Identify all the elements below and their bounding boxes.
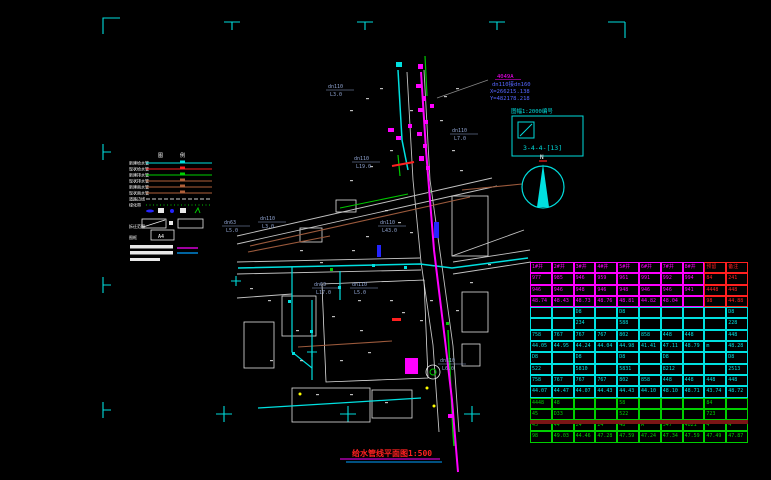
red-marks <box>392 162 414 321</box>
title-block: 给水管线平面图1:500 <box>340 448 442 462</box>
pipe-label-length: L17.0 <box>316 290 331 296</box>
table-cell: D8 <box>661 352 683 363</box>
table-cell: 48.72 <box>726 386 748 397</box>
table-cell: 448 <box>726 330 748 341</box>
pipe-label-dn: dn110 <box>380 220 395 226</box>
table-cell: 948 <box>574 285 596 296</box>
table-cell <box>704 307 726 318</box>
table-bottom-bar <box>530 420 748 424</box>
annotation-block: 4049A dn110接dn160 X=266215.138 Y=482178.… <box>490 74 531 102</box>
table-cell: 43.74 <box>704 386 726 397</box>
table-cell <box>552 352 574 363</box>
annotation-id: 4049A <box>497 74 514 80</box>
table-cell: 946 <box>574 273 596 284</box>
table-cell: 1#井 <box>530 262 552 273</box>
table-cell: 44.98 <box>617 341 639 352</box>
water-meter-symbol-icon <box>170 209 174 213</box>
table-cell: 41.41 <box>639 341 661 352</box>
pipe-label-dn: dn63 <box>314 282 326 288</box>
roads <box>237 70 531 432</box>
table-cell: 767 <box>574 330 596 341</box>
table-cell: 5810 <box>574 364 596 375</box>
table-cell <box>552 318 574 329</box>
table-cell: 48.10 <box>661 386 683 397</box>
pipe-label-dn: dn110 <box>354 156 369 162</box>
table-cell <box>726 398 748 409</box>
table-cell: D8 <box>726 307 748 318</box>
table-cell <box>683 409 705 420</box>
junction-box-symbol-icon <box>180 208 186 213</box>
table-cell: 946 <box>639 285 661 296</box>
table-cell: 47.49 <box>704 431 726 442</box>
table-cell: 992 <box>661 273 683 284</box>
table-cell: 44.07 <box>530 386 552 397</box>
annotation-x: X=266215.138 <box>490 89 530 95</box>
table-cell <box>683 352 705 363</box>
table-cell: 802 <box>617 330 639 341</box>
drawing-title: 给水管线平面图1:500 <box>352 448 432 458</box>
pipe-label-length: L43.0 <box>382 228 397 234</box>
legend-item-marker <box>180 185 185 188</box>
legend-frame-label: 图框 <box>129 234 137 240</box>
legend-frame-code: A4 <box>158 234 164 240</box>
table-cell: 767 <box>552 375 574 386</box>
table-cell <box>530 307 552 318</box>
green-pipes <box>330 56 454 446</box>
table-cell <box>704 318 726 329</box>
pipe-label-length: L5.0 <box>226 228 238 234</box>
table-cell: 48.81 <box>617 296 639 307</box>
table-cell: m <box>704 341 726 352</box>
table-cell: D33 <box>552 409 574 420</box>
table-cell <box>661 398 683 409</box>
table-group: 1#井2#井3#井4#井5#井6#井7#井8#井预留备注977985946959… <box>530 262 748 307</box>
table-cell: 47.59 <box>617 431 639 442</box>
table-cell: 6#井 <box>639 262 661 273</box>
table-cell <box>552 307 574 318</box>
pipe-label-length: L3.0 <box>262 224 274 230</box>
annotation-size: dn110接dn160 <box>492 80 531 88</box>
table-cell: 948 <box>617 285 639 296</box>
pipe-label-length: L19.0 <box>356 164 371 170</box>
pipe-label-dn: dn110 <box>328 84 343 90</box>
table-cell <box>595 398 617 409</box>
table-cell <box>595 352 617 363</box>
table-cell <box>595 307 617 318</box>
table-cell: 448 <box>704 375 726 386</box>
table-cell: 备注 <box>726 262 748 273</box>
table-cell: 234 <box>574 318 596 329</box>
table-cell: 44.05 <box>530 341 552 352</box>
annotation-y: Y=482178.218 <box>490 96 530 102</box>
table-cell <box>704 330 726 341</box>
table-cell <box>574 409 596 420</box>
table-cell: 44.88 <box>726 296 748 307</box>
pipe-label-dn: dn110 <box>352 282 367 288</box>
table-cell: 758 <box>530 375 552 386</box>
table-cell: 58 <box>617 398 639 409</box>
legend-symbols <box>146 208 200 213</box>
table-cell: 98 <box>704 296 726 307</box>
table-cell: 946 <box>530 285 552 296</box>
water-pipes <box>238 62 528 408</box>
table-cell: 5#井 <box>617 262 639 273</box>
table-cell: 44.43 <box>595 386 617 397</box>
table-cell <box>704 352 726 363</box>
table-cell: 946 <box>552 285 574 296</box>
table-cell: 448 <box>683 330 705 341</box>
table-cell: D8 <box>726 352 748 363</box>
pipe-label-dn: dn63 <box>224 220 236 226</box>
table-cell: 45 <box>530 409 552 420</box>
table-cell: 48.43 <box>552 296 574 307</box>
table-cell <box>552 364 574 375</box>
table-cell: 767 <box>552 330 574 341</box>
table-cell: 991 <box>639 273 661 284</box>
table-cell: 448 <box>661 330 683 341</box>
table-cell: 47.87 <box>726 431 748 442</box>
table-cell: 228 <box>726 318 748 329</box>
table-cell: 858 <box>639 330 661 341</box>
table-cell: 48.74 <box>530 296 552 307</box>
table-cell: 49.03 <box>552 431 574 442</box>
table-cell: 994 <box>683 273 705 284</box>
table-cell: 5831 <box>617 364 639 375</box>
table-cell: 84 <box>704 398 726 409</box>
pipe-label-length: L3.0 <box>330 92 342 98</box>
sheet-locator: 图幅1:2000编号 3-4-4-[13] <box>511 107 583 156</box>
table-cell: 47.11 <box>661 341 683 352</box>
table-cell: 961 <box>617 273 639 284</box>
meter-box-symbol-icon <box>158 208 164 213</box>
pipe-labels: dn110L3.0dn110L19.0dn110L7.0dn63L5.0dn11… <box>222 84 478 372</box>
table-cell <box>683 296 705 307</box>
table-cell: 48.73 <box>574 296 596 307</box>
table-cell: 977 <box>530 273 552 284</box>
table-cell: 47.28 <box>595 431 617 442</box>
table-group: D8D8D8D8D8522581058318212251375876776776… <box>530 352 748 397</box>
table-cell: 48.71 <box>683 386 705 397</box>
table-cell: 802 <box>617 375 639 386</box>
table-cell <box>639 352 661 363</box>
table-cell: 48.04 <box>661 296 683 307</box>
pipe-label-length: L7.0 <box>454 136 466 142</box>
table-cell: D8 <box>617 352 639 363</box>
table-cell: 767 <box>595 330 617 341</box>
table-cell: 8#井 <box>683 262 705 273</box>
table-cell: 723 <box>704 409 726 420</box>
table-cell: 241 <box>726 273 748 284</box>
legend-bars <box>130 245 198 261</box>
sheet-code: 3-4-4-[13] <box>523 144 562 152</box>
pipe-label-dn: dn110 <box>452 128 467 134</box>
table-cell: 522 <box>530 364 552 375</box>
table-cell: 959 <box>595 273 617 284</box>
table-cell <box>661 307 683 318</box>
table-cell <box>683 398 705 409</box>
table-cell: 4#井 <box>595 262 617 273</box>
table-cell: D8 <box>617 307 639 318</box>
table-cell <box>726 409 748 420</box>
table-cell <box>639 364 661 375</box>
table-cell: 44.07 <box>574 386 596 397</box>
table-cell: 48.79 <box>683 341 705 352</box>
table-cell: 448 <box>661 375 683 386</box>
table-cell: 44.95 <box>552 341 574 352</box>
table-cell <box>639 398 661 409</box>
legend-item-marker <box>180 191 185 194</box>
pipe-label-length: L6.0 <box>442 366 454 372</box>
table-cell: 47.59 <box>683 431 705 442</box>
legend-header-2: 例 <box>180 152 185 159</box>
table-cell: 8212 <box>661 364 683 375</box>
annotation-leader <box>437 80 488 98</box>
north-arrow-icon: N <box>522 154 564 208</box>
table-cell: 448 <box>726 285 748 296</box>
sheet-locator-label: 图幅1:2000编号 <box>511 107 553 115</box>
table-cell <box>639 307 661 318</box>
table-cell: 3#井 <box>574 262 596 273</box>
table-cell <box>683 318 705 329</box>
cad-drawing-canvas: dn110L3.0dn110L19.0dn110L7.0dn63L5.0dn11… <box>0 0 771 480</box>
table-cell: 48.28 <box>726 341 748 352</box>
table-cell: 48 <box>552 398 574 409</box>
legend-frame-row: 图框 A4 <box>129 230 174 240</box>
table-cell: 448 <box>683 375 705 386</box>
legend-rect-row: 拆迁范围 <box>129 219 203 229</box>
table-cell: 767 <box>574 375 596 386</box>
legend-item-marker <box>180 173 185 176</box>
legend: 图 例 新建给水管现状给水管新建排水管现状排水管新建雨水管现状雨水管道路边线绿化… <box>129 152 212 261</box>
table-cell: 48.76 <box>595 296 617 307</box>
pipe-label-length: L5.0 <box>354 290 366 296</box>
table-cell: 588 <box>617 318 639 329</box>
table-cell: 946 <box>661 285 683 296</box>
table-cell <box>704 364 726 375</box>
table-group: D8D8D82345882287587677677678028584484484… <box>530 307 748 352</box>
table-cell <box>595 318 617 329</box>
table-cell: 4448 <box>704 285 726 296</box>
table-cell: 44.43 <box>617 386 639 397</box>
table-cell: 98 <box>530 431 552 442</box>
table-cell <box>574 398 596 409</box>
table-cell <box>683 307 705 318</box>
table-cell: 44.82 <box>639 296 661 307</box>
well-data-table: 1#井2#井3#井4#井5#井6#井7#井8#井预留备注977985946959… <box>530 262 748 443</box>
table-cell: 7#井 <box>661 262 683 273</box>
table-cell: 448 <box>726 375 748 386</box>
table-cell: 47.34 <box>661 431 683 442</box>
table-cell: 758 <box>530 330 552 341</box>
table-cell <box>595 364 617 375</box>
table-cell: 84 <box>704 273 726 284</box>
table-cell: 2513 <box>726 364 748 375</box>
table-cell: D8 <box>574 352 596 363</box>
table-cell <box>683 364 705 375</box>
legend-item-label: 绿化带 <box>129 202 141 208</box>
table-cell: 44.24 <box>574 341 596 352</box>
table-cell <box>661 318 683 329</box>
table-cell <box>595 409 617 420</box>
table-cell: 44.47 <box>552 386 574 397</box>
table-cell: 预留 <box>704 262 726 273</box>
pipe-label-dn: dn110 <box>260 216 275 222</box>
table-cell: 44.04 <box>595 341 617 352</box>
table-cell: 858 <box>639 375 661 386</box>
table-cell: 4448 <box>530 398 552 409</box>
table-cell: 941 <box>683 285 705 296</box>
legend-item-label: 道路边线 <box>129 196 145 202</box>
legend-header-1: 图 <box>158 153 163 159</box>
legend-item-marker <box>180 161 185 164</box>
table-cell: 522 <box>617 409 639 420</box>
table-cell: D8 <box>574 307 596 318</box>
table-cell <box>639 318 661 329</box>
table-cell: 47.24 <box>639 431 661 442</box>
table-cell: 767 <box>595 375 617 386</box>
hydrant-symbol-icon <box>195 208 200 213</box>
pipe-label-dn: dn110 <box>440 358 455 364</box>
north-label: N <box>540 154 544 161</box>
table-cell: D8 <box>530 352 552 363</box>
legend-item-marker <box>180 179 185 182</box>
table-cell: 44.46 <box>574 431 596 442</box>
legend-item-marker <box>180 167 185 170</box>
table-cell <box>661 409 683 420</box>
table-cell <box>530 318 552 329</box>
table-cell: 946 <box>595 285 617 296</box>
valve-symbol-icon <box>146 210 154 213</box>
table-cell: 2#井 <box>552 262 574 273</box>
table-cell: 985 <box>552 273 574 284</box>
table-cell: 44.10 <box>639 386 661 397</box>
table-cell <box>639 409 661 420</box>
